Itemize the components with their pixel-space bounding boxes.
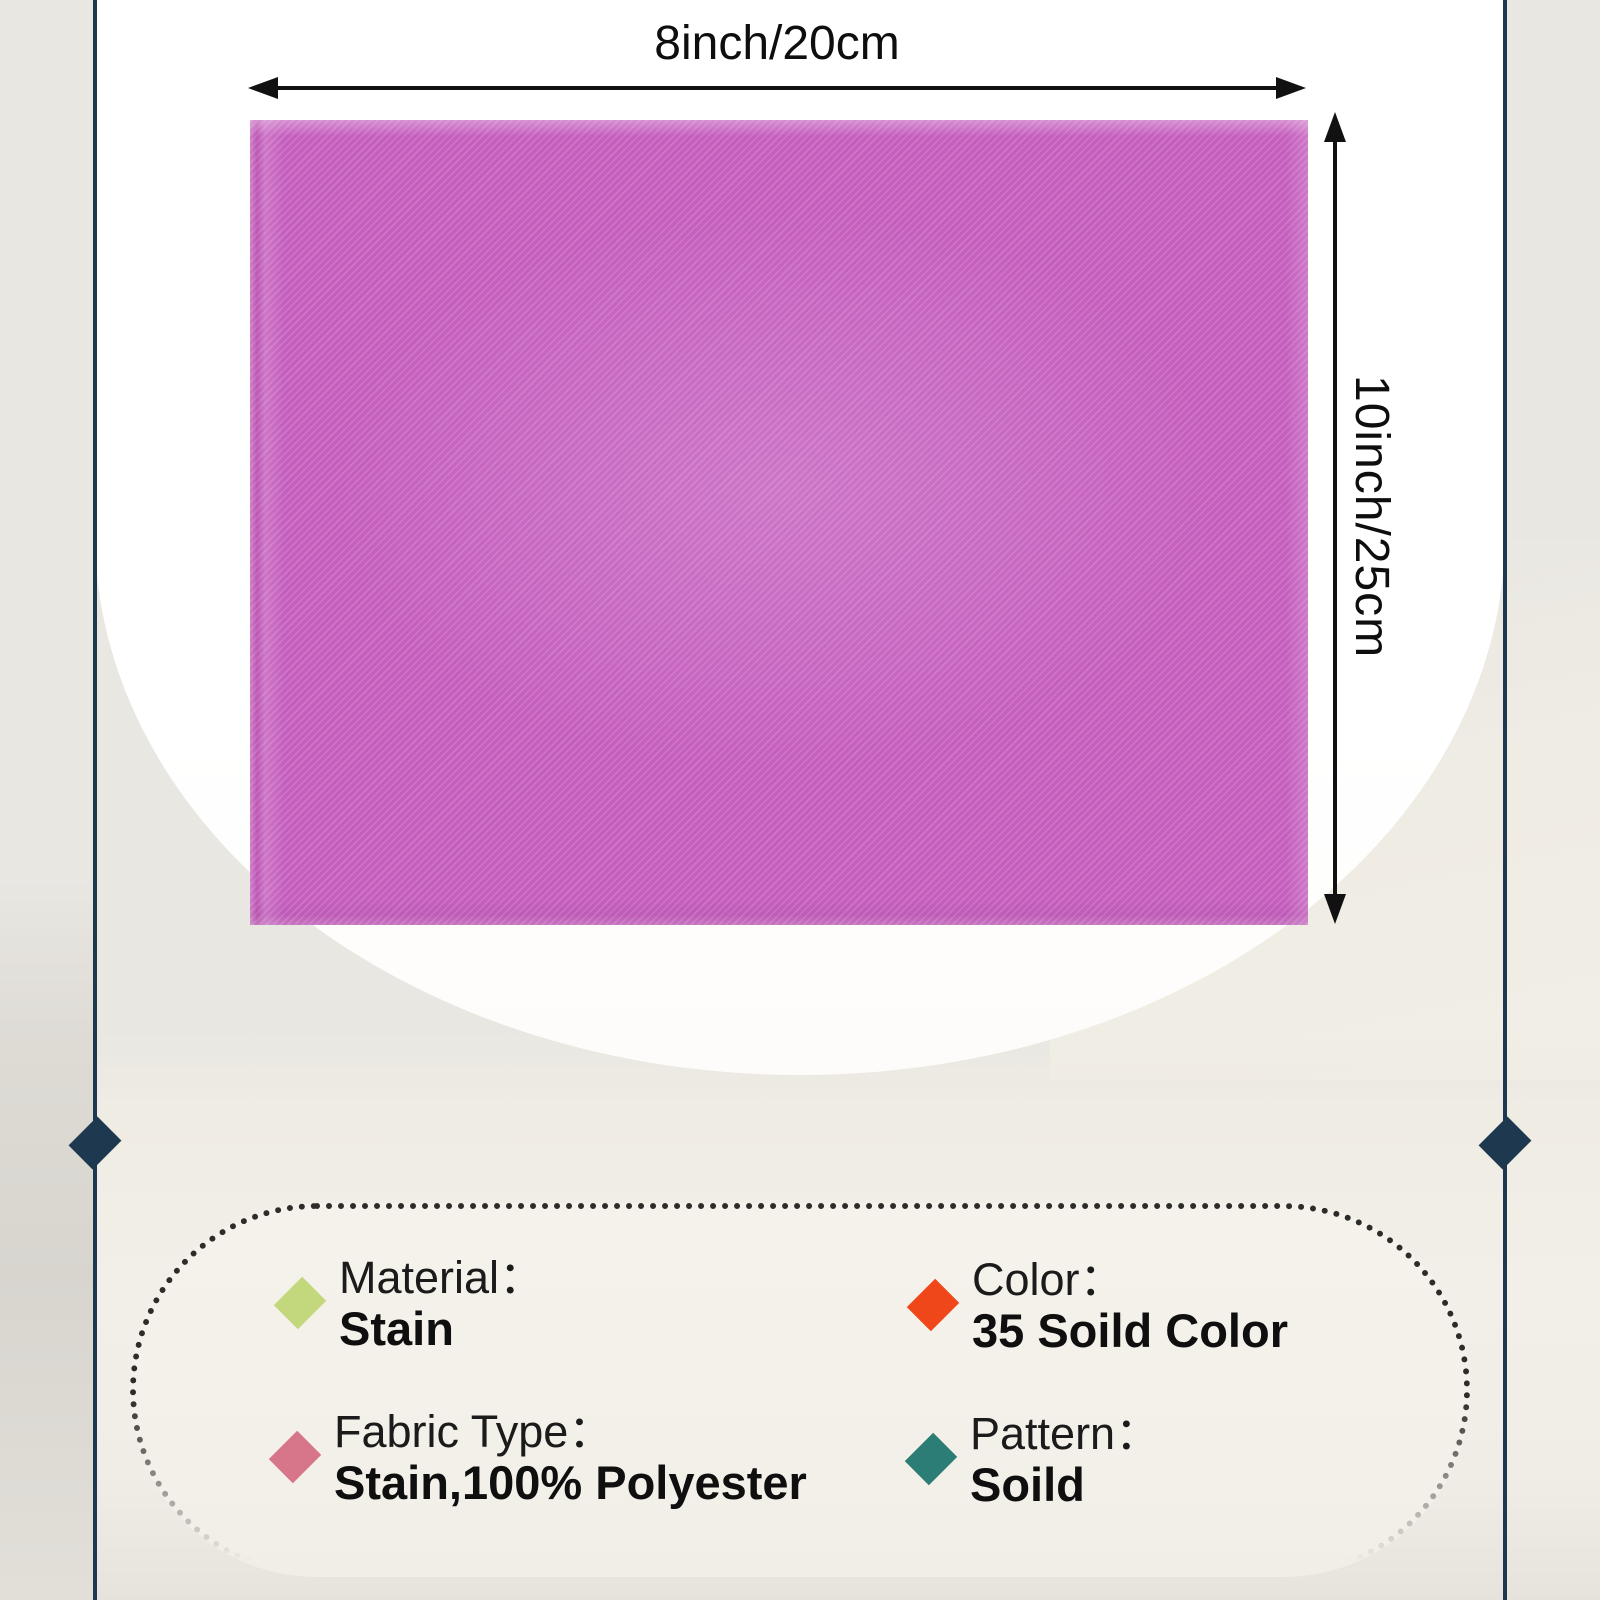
- fabric-type-label: Fabric Type：: [334, 1406, 807, 1457]
- right-accent-line: [1503, 0, 1507, 1600]
- width-dimension-label: 8inch/20cm: [248, 16, 1306, 72]
- width-arrow: [248, 77, 1306, 99]
- color-value: 35 Soild Color: [972, 1305, 1288, 1356]
- material-label: Material：: [339, 1252, 544, 1303]
- spec-item-material: Material： Stain: [283, 1252, 544, 1354]
- left-accent-line: [93, 0, 97, 1600]
- pattern-label: Pattern：: [970, 1408, 1160, 1459]
- spec-item-fabric-type: Fabric Type： Stain,100% Polyester: [278, 1406, 807, 1508]
- height-arrow: [1324, 112, 1346, 924]
- spec-item-color: Color： 35 Soild Color: [916, 1254, 1288, 1356]
- material-value: Stain: [339, 1303, 544, 1354]
- left-drape-shadow: [0, 880, 93, 1600]
- product-infographic: 8inch/20cm 10inch/25cm Material： Stain C…: [0, 0, 1600, 1600]
- arrow-line: [268, 86, 1286, 90]
- arrow-right-icon: [1276, 77, 1306, 99]
- arrow-down-icon: [1324, 894, 1346, 924]
- color-label: Color：: [972, 1254, 1288, 1305]
- spec-item-pattern: Pattern： Soild: [914, 1408, 1160, 1510]
- arrow-line: [1333, 132, 1337, 904]
- fabric-swatch: [250, 120, 1308, 925]
- height-dimension-label: 10inch/25cm: [1344, 112, 1399, 922]
- fabric-type-value: Stain,100% Polyester: [334, 1457, 807, 1508]
- pattern-value: Soild: [970, 1459, 1160, 1510]
